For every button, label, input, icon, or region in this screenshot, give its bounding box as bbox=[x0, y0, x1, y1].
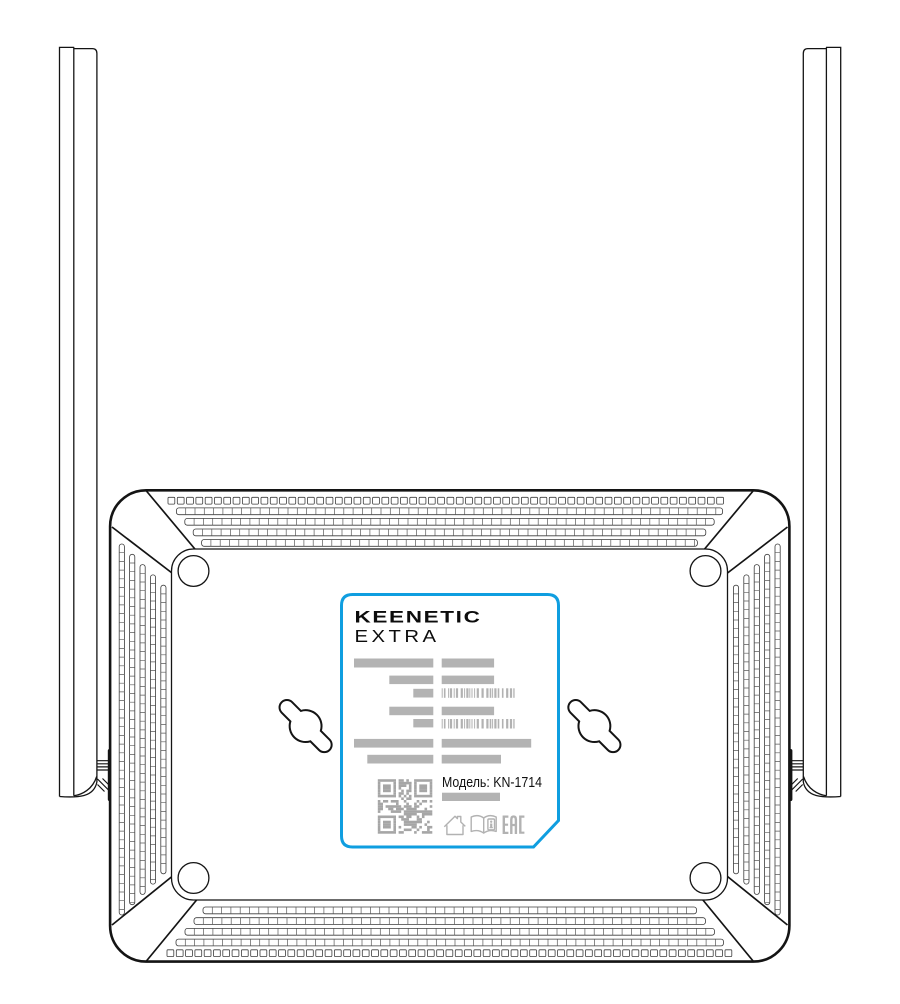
svg-text:Модель: KN-1714: Модель: KN-1714 bbox=[442, 775, 542, 791]
svg-text:EXTRA: EXTRA bbox=[355, 626, 440, 646]
svg-text:KEENETIC: KEENETIC bbox=[355, 609, 482, 627]
